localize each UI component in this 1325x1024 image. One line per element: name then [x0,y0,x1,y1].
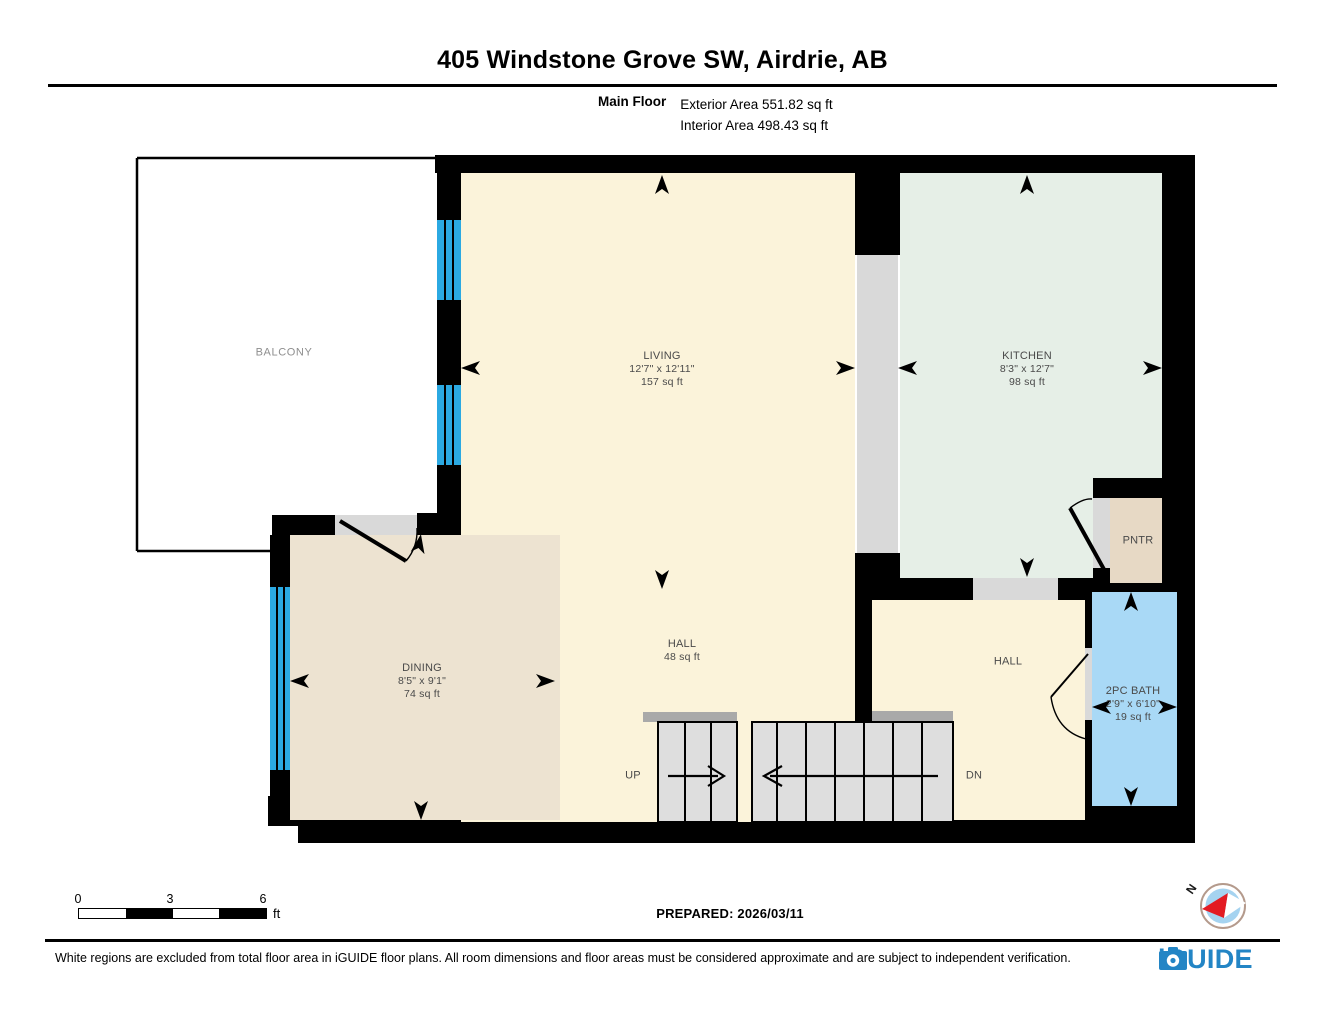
dining-window [270,587,290,770]
stairs-up-label: UP [625,770,641,783]
scale-tick-6: 6 [260,892,267,906]
kitchen-hall-opening [973,578,1058,600]
iguide-logo: iGUIDE [1158,946,1253,973]
dn-stairs-rail [872,711,953,722]
prepared-date: PREPARED: 2026/03/11 [656,906,804,921]
room-label-pantry: PNTR [1123,535,1154,548]
scale-bar [78,908,267,919]
room-label-bath: 2PC BATH 2'9" x 6'10" 19 sq ft [1106,685,1161,723]
living-window-upper [437,220,461,300]
disclaimer-text: White regions are excluded from total fl… [55,951,1071,965]
stairs-dn-label: DN [966,770,982,783]
bath-door-opening [1085,648,1092,720]
room-label-living: LIVING 12'7" x 12'11" 157 sq ft [629,350,694,388]
footer-divider [45,939,1280,942]
up-stairs-rail [643,712,737,722]
room-label-dining: DINING 8'5" x 9'1" 74 sq ft [398,662,446,700]
room-label-hall-main: HALL 48 sq ft [664,638,700,664]
scale-tick-3: 3 [167,892,174,906]
scale-tick-0: 0 [75,892,82,906]
floorplan-page: 405 Windstone Grove SW, Airdrie, AB Main… [0,0,1325,1024]
up-stairs [658,722,737,822]
living-window-lower [437,385,461,465]
living-kitchen-divider [857,255,898,553]
floorplan-drawing [0,0,1325,1024]
scale-unit: ft [273,906,280,921]
dn-stairs [752,722,953,822]
iguide-camera-icon [1158,946,1188,971]
stairs [643,711,953,822]
room-label-hall-right: HALL [994,656,1022,669]
room-label-kitchen: KITCHEN 8'3" x 12'7" 98 sq ft [1000,350,1054,388]
room-label-balcony: BALCONY [256,347,313,360]
compass-icon [1201,884,1246,928]
